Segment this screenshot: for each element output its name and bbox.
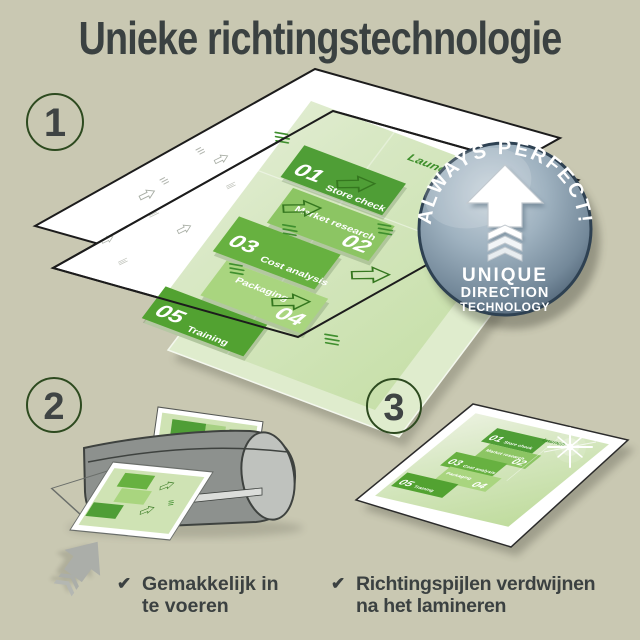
feed-arrow-icon	[41, 526, 116, 603]
badge-line1: UNIQUE	[462, 265, 548, 286]
step2-caption-line2: te voeren	[142, 595, 229, 617]
product-infographic: Unieke richtingstechnologie 1	[0, 0, 640, 640]
step3-number: 3	[383, 387, 404, 429]
infographic-canvas: Unieke richtingstechnologie 1	[0, 0, 640, 640]
badge-line2: DIRECTION	[461, 285, 550, 301]
page-title: Unieke richtingstechnologie	[79, 12, 562, 63]
step2-caption-line1: Gemakkelijk in	[142, 573, 279, 595]
step3-check-icon: ✔	[331, 574, 345, 593]
badge-line3: TECHNOLOGY	[460, 300, 550, 314]
step2-group: 2 ✔ Gemakkelijk in	[27, 378, 303, 617]
step2-number: 2	[43, 386, 64, 428]
step3-caption-line1: Richtingspijlen verdwijnen	[356, 573, 595, 595]
step2-check-icon: ✔	[117, 574, 131, 593]
step3-caption-line2: na het lamineren	[356, 595, 506, 617]
step1-number: 1	[44, 101, 66, 145]
